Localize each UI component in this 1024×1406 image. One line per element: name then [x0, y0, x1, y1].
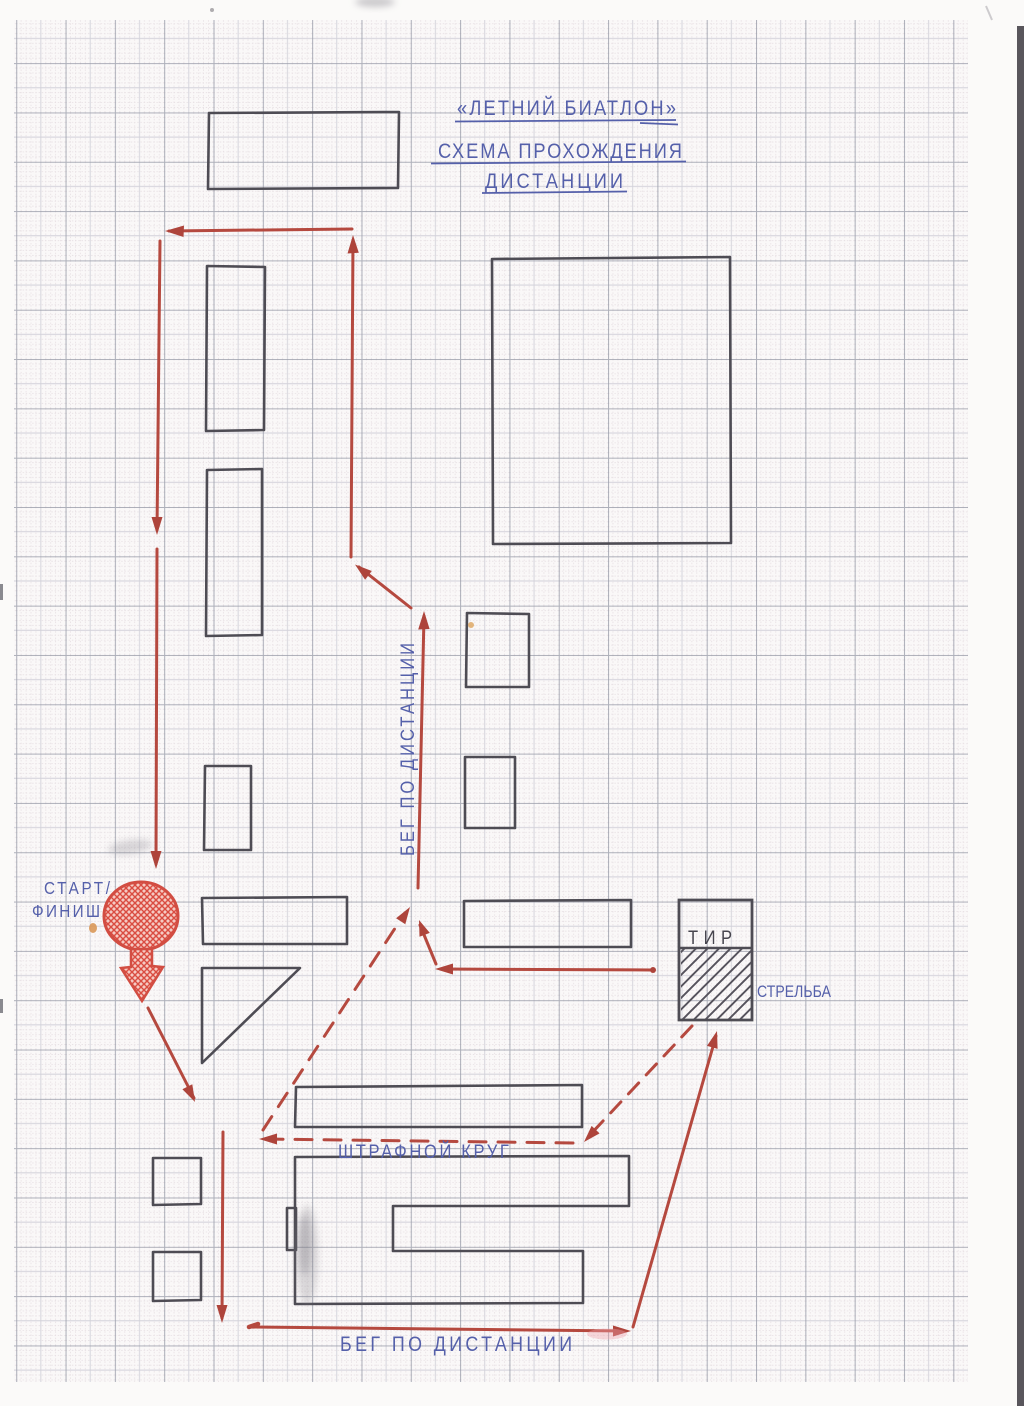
svg-text:ТИР: ТИР [688, 927, 732, 949]
svg-text:СТРЕЛЬБА: СТРЕЛЬБА [757, 983, 832, 1001]
svg-text:СТАРТ/: СТАРТ/ [44, 878, 110, 898]
svg-text:СХЕМА ПРОХОЖДЕНИЯ: СХЕМА ПРОХОЖДЕНИЯ [438, 140, 682, 164]
svg-text:ФИНИШ: ФИНИШ [32, 901, 100, 921]
svg-text:БЕГ ПО ДИСТАНЦИИ: БЕГ ПО ДИСТАНЦИИ [340, 1333, 572, 1357]
svg-text:ДИСТАНЦИИ: ДИСТАНЦИИ [485, 170, 623, 194]
svg-text:«ЛЕТНИЙ БИАТЛОН»: «ЛЕТНИЙ БИАТЛОН» [457, 95, 676, 121]
svg-text:ШТРАФНОЙ КРУГ: ШТРАФНОЙ КРУГ [338, 1140, 509, 1163]
svg-text:БЕГ ПО ДИСТАНЦИИ: БЕГ ПО ДИСТАНЦИИ [397, 643, 419, 856]
